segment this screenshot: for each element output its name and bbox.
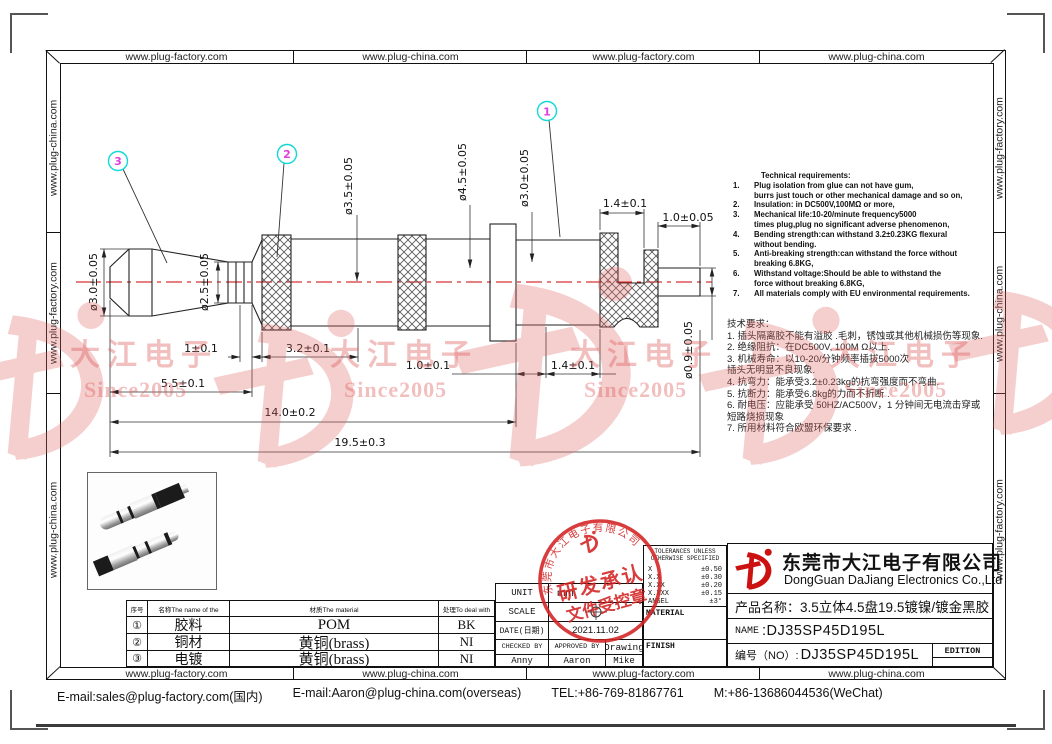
bottom-edge-line xyxy=(36,724,1016,727)
date-label: DATE(日期) xyxy=(496,621,548,639)
projection-symbol-icon xyxy=(548,602,642,621)
checked-by-label: CHECKED BY xyxy=(496,639,548,654)
req-cn-line: 1. 插头隔离胶不能有溢胶 .毛刺，锈蚀或其他机械损伤等现象. xyxy=(727,331,991,343)
materials-row1-name: 胶料 xyxy=(147,616,229,633)
req-text: breaking 6.8KG, xyxy=(754,259,813,269)
url-band-bottom-4: www.plug-china.com xyxy=(759,668,993,680)
photo-plug-1 xyxy=(97,481,191,533)
req-text: Mechanical life:10-20/minute frequency50… xyxy=(754,210,917,220)
req-text: force without breaking 6.8KG, xyxy=(754,279,864,289)
materials-row3-treat: NI xyxy=(438,650,494,666)
materials-table: 序号 名称The name of the 材质The material 处理To… xyxy=(126,600,495,667)
tech-requirements-en: Technical requirements: 1.Plug isolation… xyxy=(733,171,993,298)
model-name-label: NAME xyxy=(735,626,759,637)
materials-row2-no: ② xyxy=(127,633,147,650)
edition-label: EDITION xyxy=(933,644,992,658)
dim-dia-4.5: ø4.5±0.05 xyxy=(456,143,469,201)
tol-value: ±3° xyxy=(709,598,722,606)
tol-grade: X.XX xyxy=(648,582,665,590)
tech-req-cn-title: 技术要求： xyxy=(727,319,991,331)
url-band-left-3: www.plug-china.com xyxy=(47,393,60,666)
part-no-label: 编号（NO）: xyxy=(735,647,799,663)
materials-row1-treat: BK xyxy=(438,616,494,633)
mobile-wechat: M:+86-13686044536(WeChat) xyxy=(714,686,883,705)
req-cn-line: 6. 耐电压：应能承受 50HZ/AC500V，1 分钟间无电流击穿或 xyxy=(727,400,991,412)
crop-mark-top-right xyxy=(1007,13,1045,53)
req-cn-line: 7. 所用材料符合欧盟环保要求 . xyxy=(727,423,991,435)
balloon-2: 2 xyxy=(283,148,291,161)
approved-by-name: Aaron xyxy=(548,654,605,666)
req-cn-line: 5. 抗断力：能承受6.8kg的力而不折断 . xyxy=(727,389,991,401)
dim-1.4-bottom: 1.4±0.1 xyxy=(551,359,595,372)
balloon-1: 1 xyxy=(543,106,551,119)
photo-plug-2 xyxy=(93,527,181,577)
email-domestic: E-mail:sales@plug-factory.com(国内) xyxy=(57,686,263,705)
req-text: burrs just touch or other mechanical dam… xyxy=(754,191,962,201)
drawing-sheet: www.plug-factory.com www.plug-china.com … xyxy=(0,0,1052,744)
unit-label: UNIT xyxy=(496,584,548,602)
req-num: 1. xyxy=(733,181,754,191)
req-text: Anti-breaking strength:can withstand the… xyxy=(754,249,957,259)
materials-header-treat: 处理To deal with xyxy=(438,601,494,616)
materials-row3-material: 黄铜(brass) xyxy=(229,650,438,666)
req-cn-line: 插头无明显不良现象. xyxy=(727,365,991,377)
materials-row2-material: 黄铜(brass) xyxy=(229,633,438,650)
company-name-cn: 东莞市大江电子有限公司 xyxy=(782,548,1002,575)
dim-14.0: 14.0±0.2 xyxy=(264,406,315,419)
drawing-by-name: Mike xyxy=(605,654,642,666)
url-band-top-1: www.plug-factory.com xyxy=(60,51,293,63)
date-value: 2021.11.02 xyxy=(548,621,642,639)
materials-row1-material: POM xyxy=(229,616,438,633)
dim-1: 1±0.1 xyxy=(184,342,218,355)
req-text: without bending. xyxy=(754,240,816,250)
req-num xyxy=(733,240,754,250)
req-num: 5. xyxy=(733,249,754,259)
url-band-right-1: www.plug-factory.com xyxy=(993,64,1006,232)
dim-3.2: 3.2±0.1 xyxy=(286,342,330,355)
product-name-value: 3.5立体4.5盘19.5镀镍/镀金黑胶 xyxy=(800,596,989,616)
tol-value: ±0.15 xyxy=(701,590,722,598)
materials-row2-treat: NI xyxy=(438,633,494,650)
req-num: 4. xyxy=(733,230,754,240)
materials-header-name: 名称The name of the xyxy=(147,601,229,616)
tol-grade: X xyxy=(648,566,652,574)
telephone: TEL:+86-769-81867761 xyxy=(551,686,683,705)
approved-by-label: APPROVED BY xyxy=(548,639,605,654)
product-name-row: 产品名称： 3.5立体4.5盘19.5镀镍/镀金黑胶 xyxy=(728,593,992,618)
footer-contacts: E-mail:sales@plug-factory.com(国内) E-mail… xyxy=(57,686,883,705)
balloon-3: 3 xyxy=(114,155,122,168)
url-band-top-2: www.plug-china.com xyxy=(293,51,527,63)
tech-req-en-title: Technical requirements: xyxy=(733,171,993,181)
url-band-right-2: www.plug-china.com xyxy=(993,232,1006,394)
info-block: UNIT mm SCALE DATE(日期) 2021.11.02 CHECKE… xyxy=(495,583,643,667)
tol-grade: ANGEL xyxy=(648,598,669,606)
dim-1.4-top: 1.4±0.1 xyxy=(603,197,647,210)
materials-row3-name: 电镀 xyxy=(147,650,229,666)
req-num xyxy=(733,220,754,230)
model-name-value: :DJ35SP45D195L xyxy=(762,623,885,639)
req-cn-line: 2. 绝缘阻抗：在DC500V, 100M Ω以上. xyxy=(727,342,991,354)
materials-header-no: 序号 xyxy=(127,601,147,616)
dim-5.5: 5.5±0.1 xyxy=(161,377,205,390)
url-band-bottom-2: www.plug-china.com xyxy=(293,668,527,680)
tol-value: ±0.20 xyxy=(701,582,722,590)
product-photo xyxy=(87,472,217,590)
tol-value: ±0.50 xyxy=(701,566,722,574)
req-num: 2. xyxy=(733,200,754,210)
tol-grade: X.XXX xyxy=(648,590,669,598)
req-text: times plug,plug no significant adverse p… xyxy=(754,220,949,230)
req-cn-line: 短路烧损现象 xyxy=(727,412,991,424)
req-cn-line: 4. 抗弯力：能承受3.2±0.23kg的抗弯强度而不弯曲. xyxy=(727,377,991,389)
dim-dia-0.9: ø0.9±0.05 xyxy=(682,321,695,379)
unit-value: mm xyxy=(548,584,642,602)
crop-mark-top-left xyxy=(10,13,48,53)
req-cn-line: 3. 机械寿命：以10-20/分钟频率插拔5000次 xyxy=(727,354,991,366)
req-text: Plug isolation from glue can not have gu… xyxy=(754,181,913,191)
req-text: Bending strength:can withstand 3.2±0.23K… xyxy=(754,230,947,240)
dim-1.0-bottom: 1.0±0.1 xyxy=(406,359,450,372)
tol-grade: X.X xyxy=(648,574,661,582)
finish-label: FINISH xyxy=(644,639,726,666)
url-band-right-3: www.plug-factory.com xyxy=(993,393,1006,666)
url-band-bottom-3: www.plug-factory.com xyxy=(526,668,760,680)
materials-header-material: 材质The material xyxy=(229,601,438,616)
product-name-label: 产品名称： xyxy=(735,597,800,616)
materials-row1-no: ① xyxy=(127,616,147,633)
tolerance-header: TOLERANCES UNLESS OTHERWISE SPECIFIED xyxy=(646,548,724,562)
dim-19.5: 19.5±0.3 xyxy=(334,436,385,449)
dim-dia-2.5: ø2.5±0.05 xyxy=(198,253,211,311)
model-name-row: NAME :DJ35SP45D195L xyxy=(728,618,992,643)
req-text: All materials comply with EU environment… xyxy=(754,289,970,299)
tolerance-block: TOLERANCES UNLESS OTHERWISE SPECIFIED X±… xyxy=(643,545,727,667)
dim-dia-3.5: ø3.5±0.05 xyxy=(342,157,355,215)
req-text: Insulation: in DC500V,100MΩ or more, xyxy=(754,200,895,210)
edition-box: EDITION xyxy=(932,643,992,666)
url-band-top-4: www.plug-china.com xyxy=(759,51,993,63)
drawing-by-label: Drawing xyxy=(605,639,642,654)
dim-dia-3.0-right: ø3.0±0.05 xyxy=(518,149,531,207)
company-logo-icon xyxy=(733,547,777,591)
req-num xyxy=(733,259,754,269)
company-name-en: DongGuan DaJiang Electronics Co.,Ltd xyxy=(784,573,1002,587)
material-label: MATERIAL xyxy=(644,606,726,639)
part-no-row: 编号（NO）: DJ35SP45D195L xyxy=(728,643,932,666)
req-num xyxy=(733,191,754,201)
req-text: Withstand voltage:Should be able to with… xyxy=(754,269,941,279)
req-num: 7. xyxy=(733,289,754,299)
tol-value: ±0.30 xyxy=(701,574,722,582)
title-block: 东莞市大江电子有限公司 DongGuan DaJiang Electronics… xyxy=(727,543,993,667)
materials-row3-no: ③ xyxy=(127,650,147,666)
scale-label: SCALE xyxy=(496,602,548,621)
tech-requirements-cn: 技术要求： 1. 插头隔离胶不能有溢胶 .毛刺，锈蚀或其他机械损伤等现象. 2.… xyxy=(727,319,991,435)
url-band-left-2: www.plug-factory.com xyxy=(47,232,60,394)
req-num: 6. xyxy=(733,269,754,279)
url-band-top-3: www.plug-factory.com xyxy=(526,51,760,63)
req-num xyxy=(733,279,754,289)
part-no-value: DJ35SP45D195L xyxy=(801,647,920,663)
dim-dia-3.0-left: ø3.0±0.05 xyxy=(87,253,100,311)
materials-row2-name: 铜材 xyxy=(147,633,229,650)
url-band-left-1: www.plug-china.com xyxy=(47,64,60,232)
email-overseas: E-mail:Aaron@plug-china.com(overseas) xyxy=(293,686,522,705)
checked-by-name: Anny xyxy=(496,654,548,666)
url-band-bottom-1: www.plug-factory.com xyxy=(60,668,293,680)
req-num: 3. xyxy=(733,210,754,220)
dim-1.0-top: 1.0±0.05 xyxy=(662,211,713,224)
tolerance-rows: X±0.50 X.X±0.30 X.XX±0.20 X.XXX±0.15 ANG… xyxy=(648,566,722,606)
